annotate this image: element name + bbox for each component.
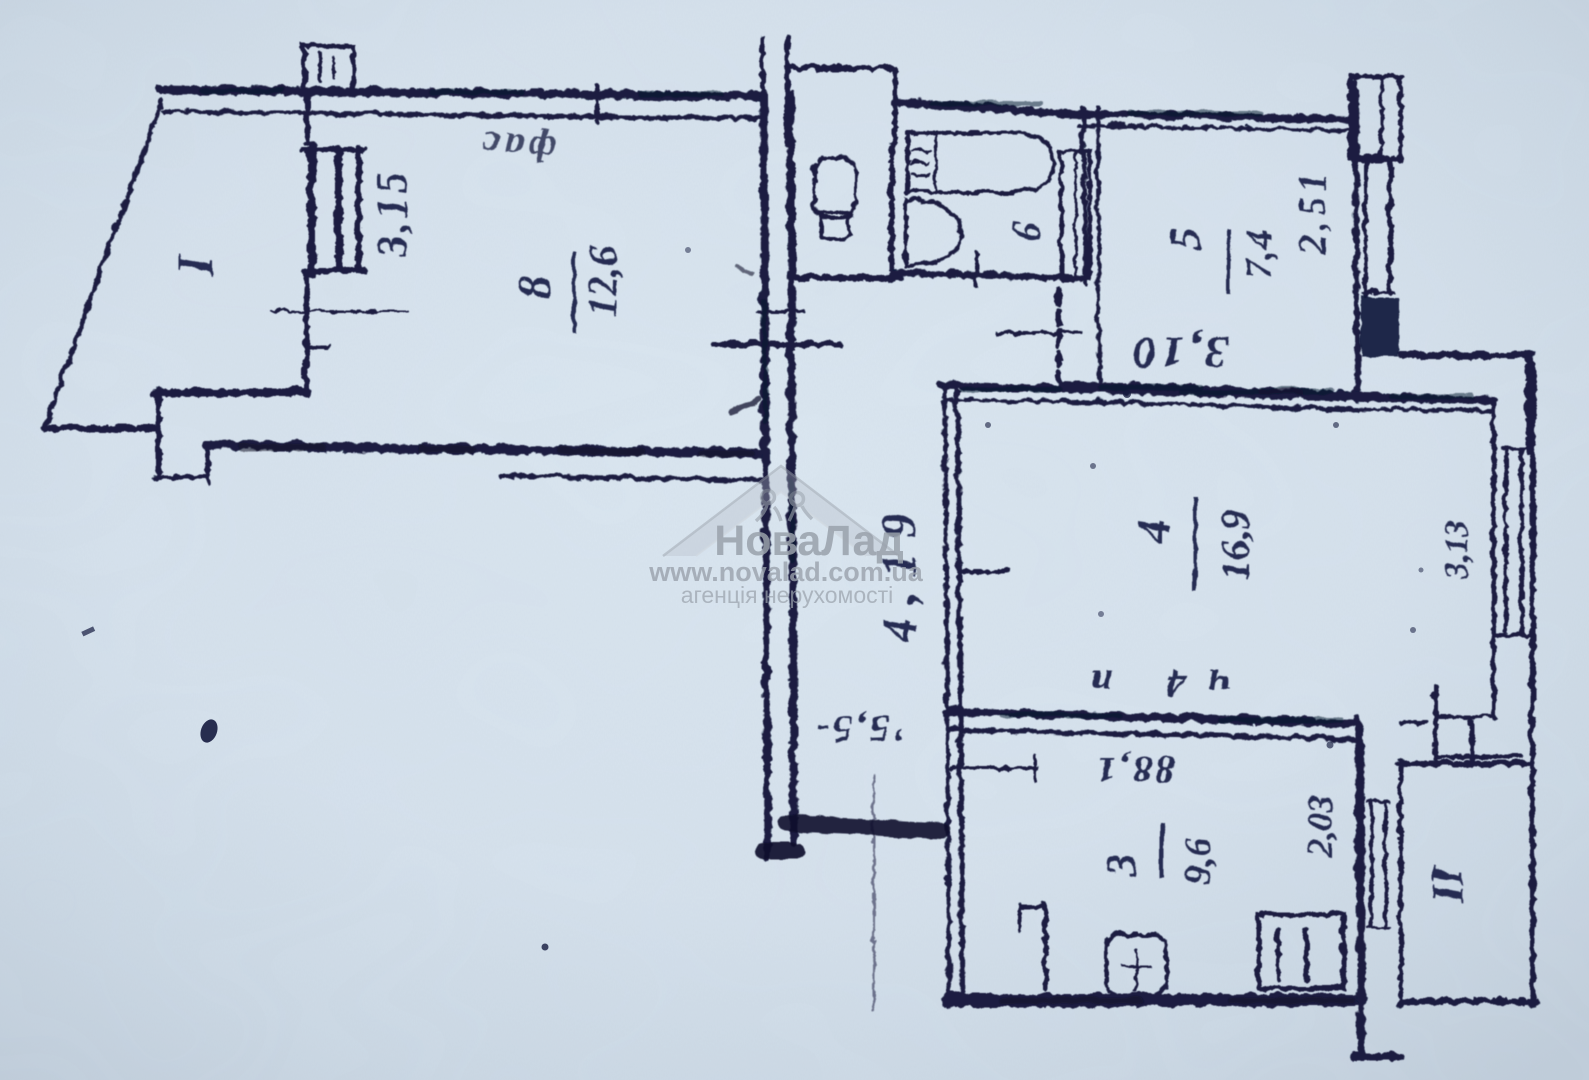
svg-text:II: II [1422, 865, 1471, 902]
svg-text:88,1: 88,1 [1092, 747, 1175, 789]
svg-text:7,4: 7,4 [1237, 229, 1279, 277]
svg-text:ʼ5,5-: ʼ5,5- [811, 704, 905, 749]
svg-text:I: I [166, 252, 223, 275]
svg-text:3,15: 3,15 [366, 168, 415, 258]
svg-text:агенція нерухомості: агенція нерухомості [681, 582, 894, 608]
svg-text:16,9: 16,9 [1211, 509, 1256, 579]
svg-text:2,51: 2,51 [1288, 167, 1333, 254]
svg-text:3,13: 3,13 [1437, 518, 1474, 579]
svg-text:3,10: 3,10 [1127, 326, 1229, 377]
svg-text:8: 8 [507, 274, 560, 298]
svg-text:фас: фас [475, 121, 556, 170]
svg-text:6: 6 [1003, 220, 1048, 240]
svg-text:ч4 п: ч4 п [1067, 660, 1228, 705]
svg-text:3: 3 [1096, 853, 1145, 876]
svg-text:2,03: 2,03 [1299, 794, 1339, 858]
svg-text:5: 5 [1160, 227, 1209, 249]
svg-text:4: 4 [1127, 518, 1180, 543]
svg-text:9,6: 9,6 [1176, 836, 1218, 884]
svg-text:12,6: 12,6 [579, 245, 624, 315]
